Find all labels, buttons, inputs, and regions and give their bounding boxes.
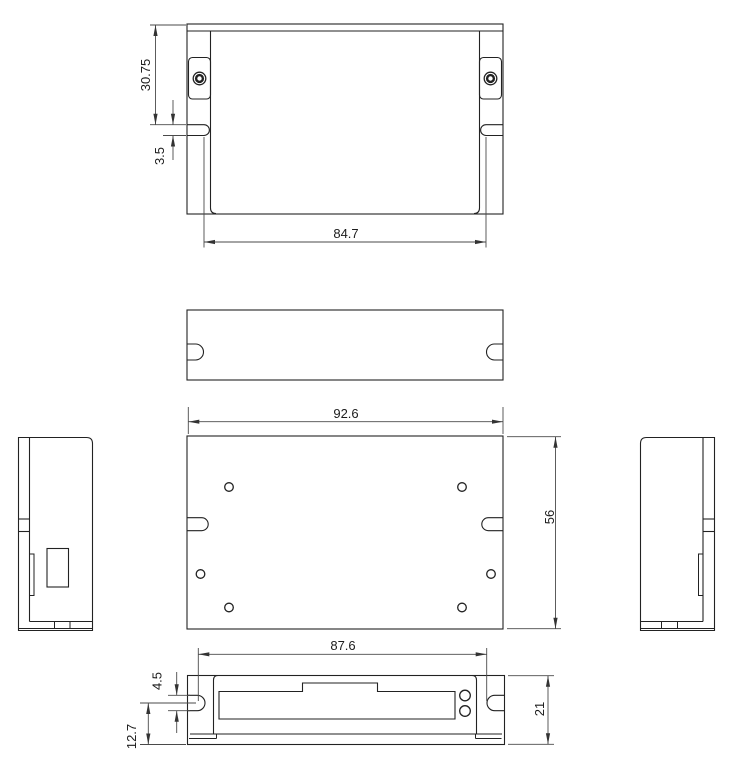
mount-hole-right-inner (487, 75, 494, 82)
dim-front-slot-height: 4.5 (150, 672, 191, 733)
front-right-wall (472, 676, 477, 735)
base-plate-outline (187, 436, 503, 629)
dim-top-slot-height: 3.5 (152, 100, 186, 165)
mount-hole-left-inner (196, 75, 203, 82)
right-side-view (641, 438, 715, 631)
dim-label-3-5: 3.5 (152, 147, 167, 165)
dim-body-width: 92.6 (188, 406, 503, 434)
dim-body-depth: 56 (507, 437, 561, 629)
base-slot-left (187, 518, 208, 531)
dim-top-slot-span: 84.7 (204, 137, 486, 248)
dim-label-30-75: 30.75 (138, 59, 153, 92)
top-view-right-wall (474, 31, 480, 214)
dim-label-56: 56 (542, 510, 557, 524)
base-plate-view: 56 (187, 436, 561, 629)
dim-label-21: 21 (532, 702, 547, 716)
mount-ear-right (480, 58, 502, 100)
dim-mount-hole-offset: 30.75 (138, 25, 186, 125)
dim-label-84-7: 84.7 (333, 226, 358, 241)
dim-label-12-7: 12.7 (124, 724, 139, 749)
top-slot-right (481, 125, 503, 136)
connector-opening (219, 683, 455, 719)
left-connector-window (47, 549, 69, 588)
technical-drawing: 30.75 3.5 84.7 92.6 (0, 0, 733, 767)
dim-front-height: 21 (508, 676, 554, 745)
top-face-outline (187, 310, 503, 380)
top-face-slot-right (487, 344, 504, 360)
left-side-view (19, 438, 93, 631)
front-left-wall (214, 676, 219, 735)
top-view-outline (187, 24, 503, 214)
top-view: 30.75 3.5 84.7 (138, 24, 503, 248)
screw-hole (225, 603, 234, 612)
top-slot-left (187, 125, 209, 136)
screw-hole (458, 483, 467, 492)
front-view: 87.6 4.5 12.7 21 (124, 638, 554, 749)
dim-slot-center-to-base: 12.7 (124, 703, 196, 749)
right-flange-rib (699, 554, 704, 596)
front-slot-right (487, 695, 505, 710)
top-face-view: 92.6 (187, 310, 503, 434)
led-indicator-bottom (460, 706, 471, 717)
dim-label-92-6: 92.6 (333, 406, 358, 421)
top-face-slot-left (187, 344, 204, 360)
screw-hole (458, 603, 467, 612)
top-view-left-wall (211, 31, 217, 214)
base-slot-right (482, 518, 503, 531)
screw-hole (196, 570, 205, 579)
mount-ear-left (189, 58, 211, 100)
screw-hole (225, 483, 234, 492)
left-flange-rib (30, 554, 35, 596)
dim-label-87-6: 87.6 (330, 638, 355, 653)
drawing-canvas: 30.75 3.5 84.7 92.6 (0, 0, 733, 767)
screw-hole (487, 570, 496, 579)
dim-label-4-5: 4.5 (150, 672, 165, 690)
led-indicator-top (460, 690, 471, 701)
